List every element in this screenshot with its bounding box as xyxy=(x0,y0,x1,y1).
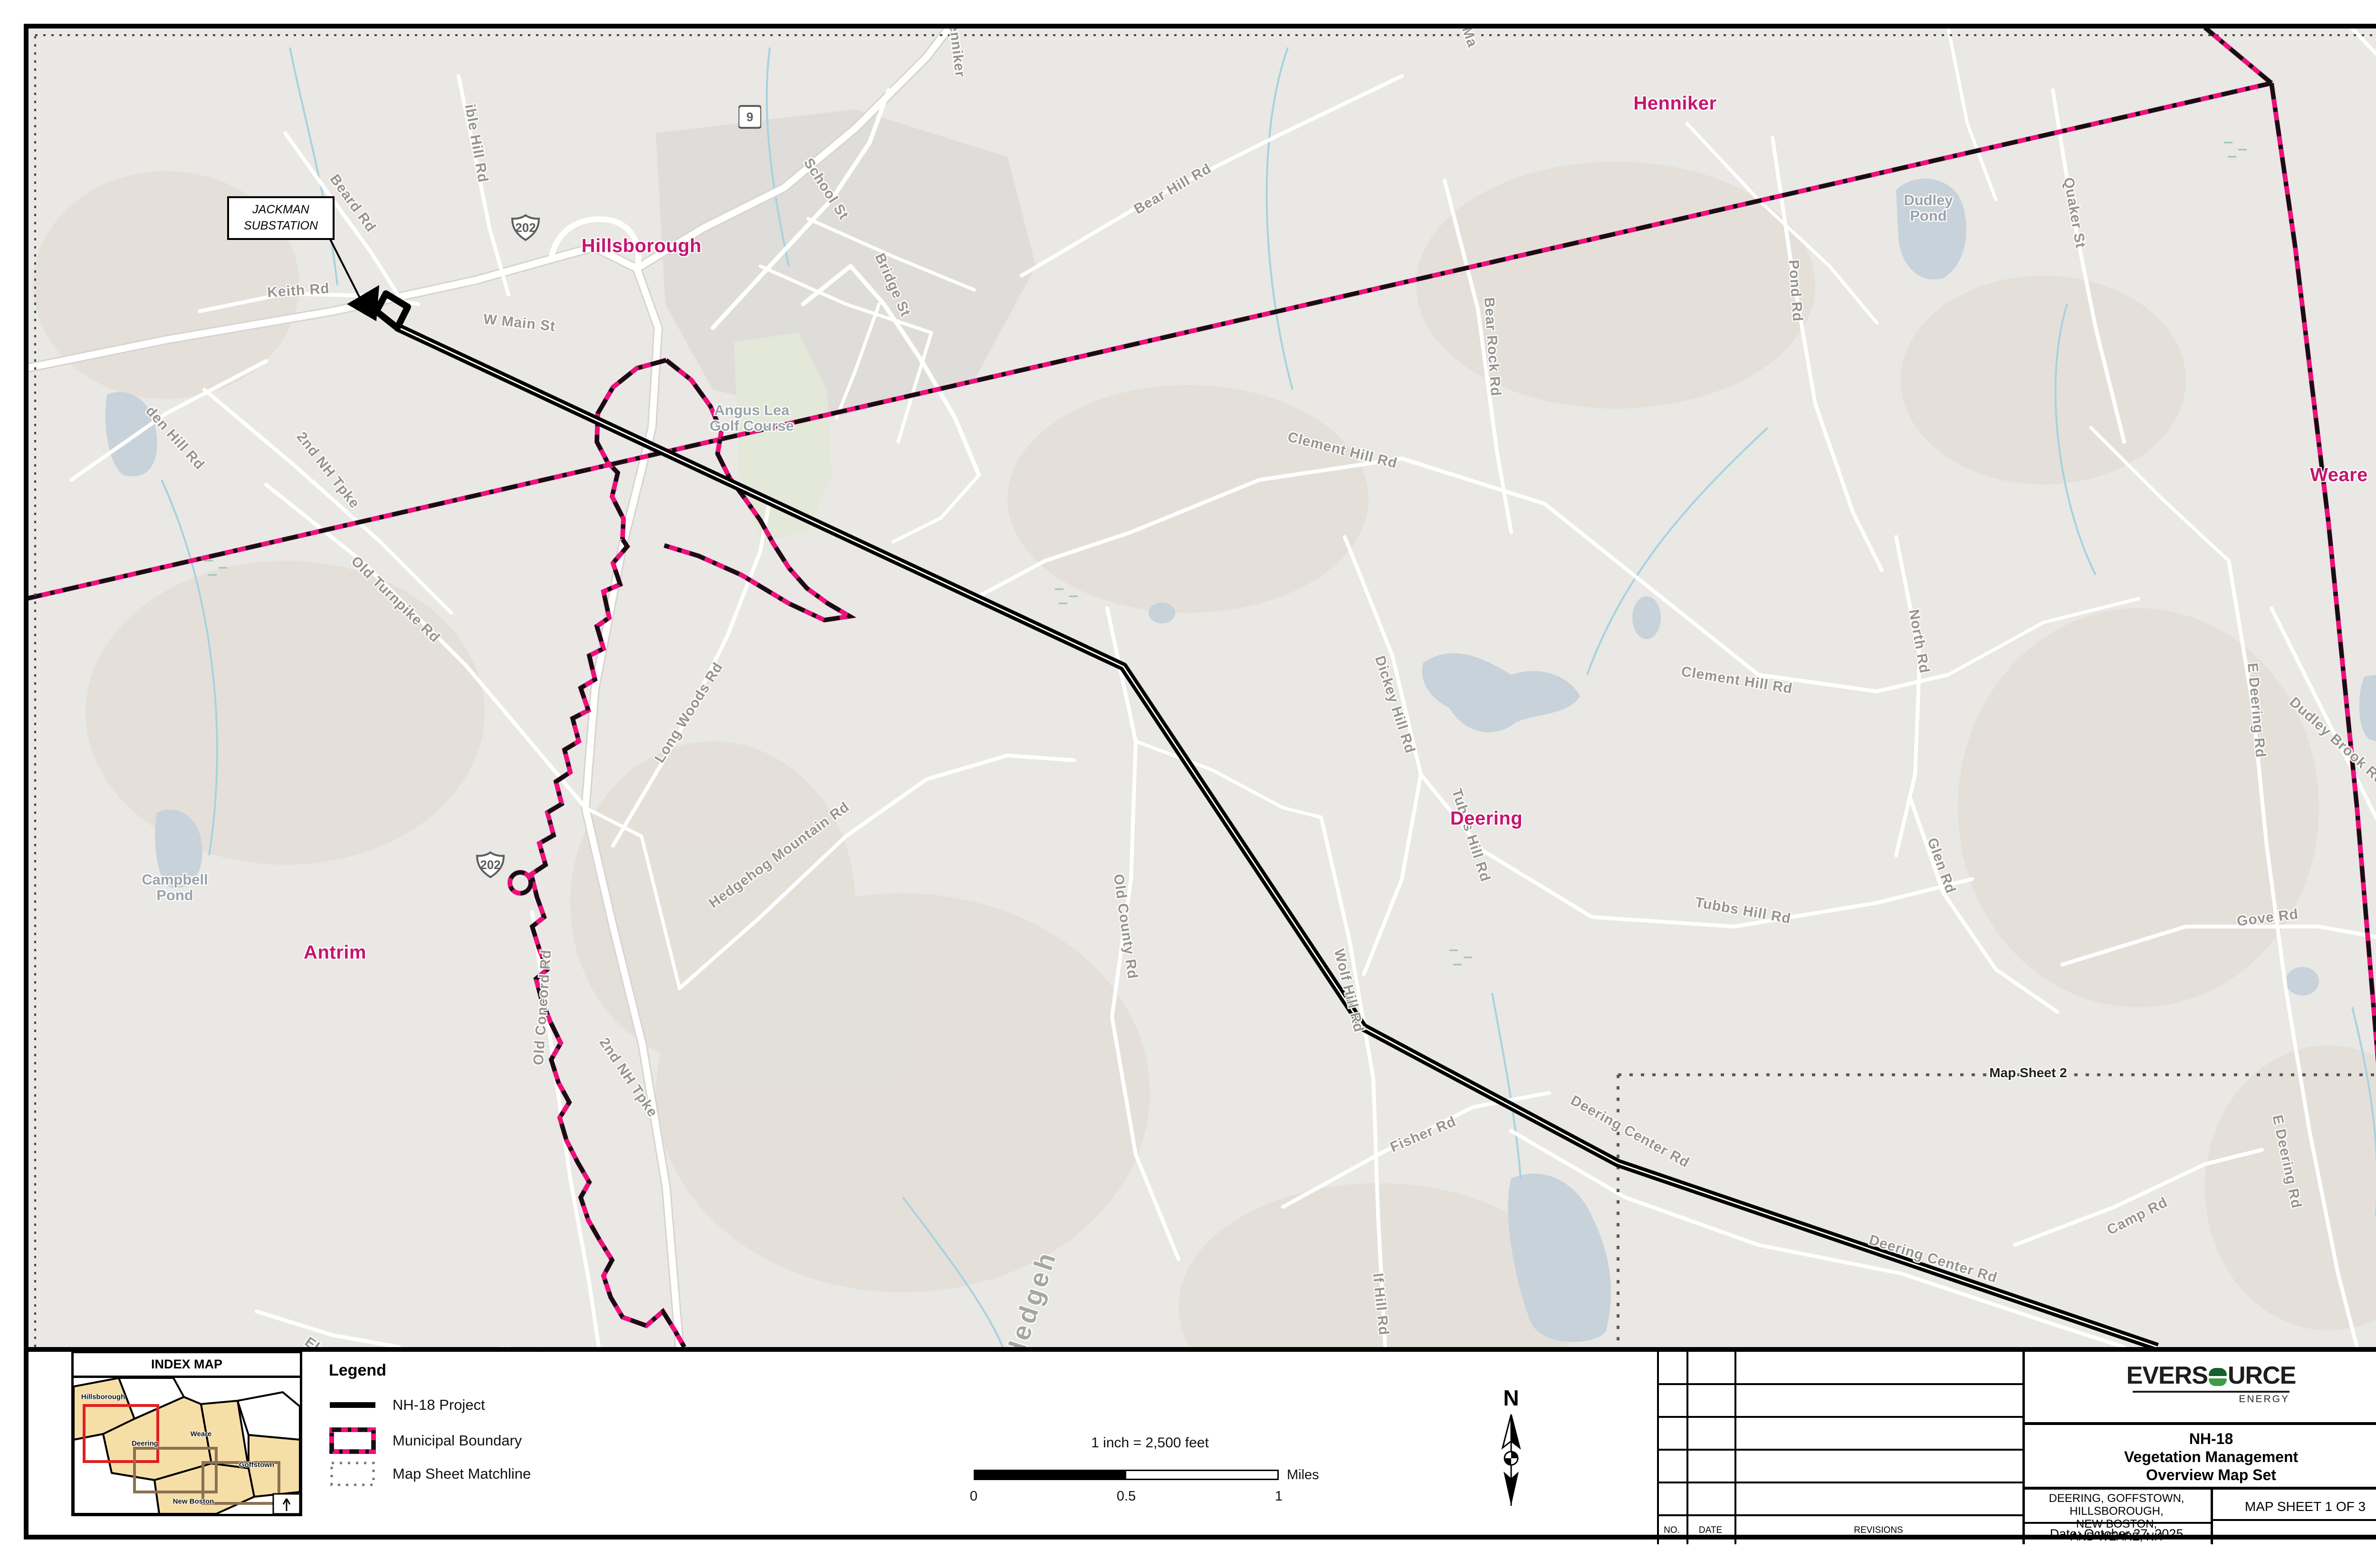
index-town-weare: Weare xyxy=(191,1430,212,1438)
index-town-newboston: New Boston xyxy=(173,1498,214,1506)
logo-text-right: URCE xyxy=(2228,1361,2296,1390)
date-label: Date: October 27, 2025 xyxy=(2022,1527,2211,1541)
index-town-goffstown: Goffstown xyxy=(239,1461,274,1469)
state-route-shield-9: 9 xyxy=(738,103,761,131)
revisions-col-date: DATE xyxy=(1686,1525,1734,1536)
water-label: Dudley Pond xyxy=(1904,192,1953,224)
towns-line2: HILLSBOROUGH, xyxy=(2022,1505,2211,1518)
index-town-hillsborough: Hillsborough xyxy=(81,1393,125,1401)
legend-item-municipal-boundary: Municipal Boundary xyxy=(329,1427,522,1454)
index-map: INDEX MAP Hillsborough xyxy=(71,1351,302,1516)
us-route-shield-202: 202 xyxy=(510,214,541,241)
shield-number: 202 xyxy=(510,214,541,241)
scale-tick-1: 1 xyxy=(1275,1489,1283,1504)
eversource-logo: EVERSURCE ENERGY xyxy=(2022,1361,2376,1405)
town-label: Weare xyxy=(2310,465,2368,486)
map-sheet: Beard Rdible Hill RdKeith RdW Main StSch… xyxy=(0,0,2376,1568)
scale-unit: Miles xyxy=(1287,1467,1319,1483)
map-area: Beard Rdible Hill RdKeith RdW Main StSch… xyxy=(29,29,2376,1349)
logo-text-left: EVERS xyxy=(2127,1361,2208,1390)
project-line3: Overview Map Set xyxy=(2022,1466,2376,1484)
logo-rule xyxy=(2133,1391,2290,1393)
index-map-title: INDEX MAP xyxy=(74,1353,300,1378)
shield-number: 9 xyxy=(738,103,761,131)
callout-leader xyxy=(329,237,365,308)
matchline-swatch xyxy=(329,1460,376,1488)
nh18-line-swatch xyxy=(329,1396,376,1415)
legend-title: Legend xyxy=(329,1361,386,1380)
north-arrow: N xyxy=(1478,1385,1544,1513)
index-town-deering: Deering xyxy=(132,1440,158,1448)
legend-item-matchline: Map Sheet Matchline xyxy=(329,1460,531,1488)
logo-energy: ENERGY xyxy=(2133,1394,2290,1405)
bottom-bar: INDEX MAP Hillsborough xyxy=(29,1347,2376,1544)
town-label: Henniker xyxy=(1633,93,1716,115)
revisions-col-no: NO. xyxy=(1657,1525,1686,1536)
urban-area xyxy=(656,109,1036,418)
project-title: NH-18 xyxy=(2022,1430,2376,1448)
north-label: N xyxy=(1478,1385,1544,1411)
north-arrow-graphic xyxy=(1478,1411,1544,1511)
revisions-col-revisions: REVISIONS xyxy=(1734,1525,2022,1536)
us-route-shield-202: 202 xyxy=(475,851,506,879)
water-label: Campbell Pond xyxy=(142,872,208,904)
municipal-boundary-swatch xyxy=(329,1427,376,1454)
scale-tick-0: 0 xyxy=(970,1489,977,1504)
shield-number: 202 xyxy=(475,851,506,879)
water-label: Angus Lea Golf Course xyxy=(709,402,794,434)
substation-callout-line2: SUBSTATION xyxy=(230,218,332,234)
scale-tick-05: 0.5 xyxy=(1117,1489,1136,1504)
eversource-o-icon xyxy=(2209,1368,2227,1386)
town-label: Hillsborough xyxy=(582,236,702,257)
basemap xyxy=(29,29,2376,1349)
scale-ratio-text: 1 inch = 2,500 feet xyxy=(1041,1435,1259,1451)
project-line2: Vegetation Management xyxy=(2022,1448,2376,1466)
substation-callout-line1: JACKMAN xyxy=(230,202,332,218)
legend-item-nh18: NH-18 Project xyxy=(329,1396,485,1415)
matchline-label: Map Sheet 2 xyxy=(1989,1065,2067,1080)
towns-line1: DEERING, GOFFSTOWN, xyxy=(2022,1492,2211,1505)
map-sheet-number: MAP SHEET 1 OF 3 xyxy=(2211,1499,2376,1514)
town-label: Antrim xyxy=(304,942,366,964)
scale-bar xyxy=(974,1470,1279,1480)
town-label: Deering xyxy=(1450,808,1523,830)
terrain-shading xyxy=(33,162,2376,1349)
substation-callout: JACKMAN SUBSTATION xyxy=(227,196,335,240)
